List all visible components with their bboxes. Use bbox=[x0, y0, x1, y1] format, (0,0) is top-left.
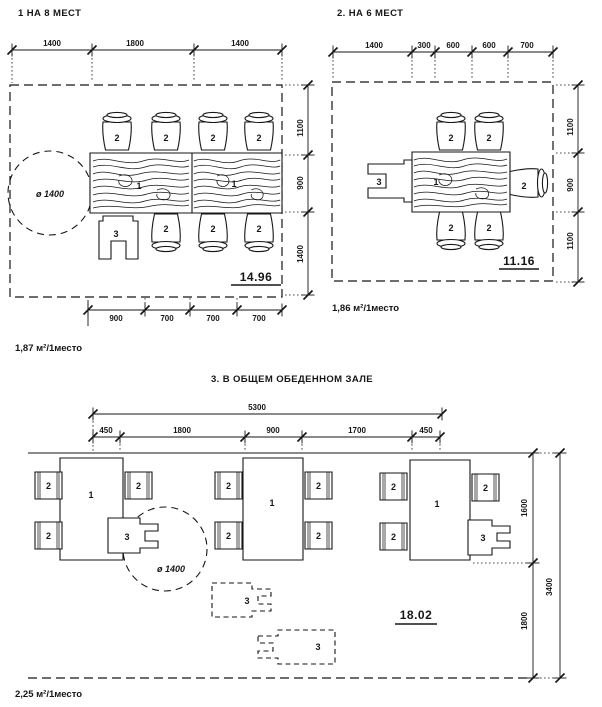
dimension-line-top: 450 1800 900 1700 450 bbox=[89, 417, 445, 452]
chair-label: 2 bbox=[316, 481, 321, 491]
chair-label: 2 bbox=[391, 532, 396, 542]
chair-symbol: 2 bbox=[215, 522, 242, 549]
panel-6-seats: 2. НА 6 МЕСТ 2 2 2 2 2 3 1 1400 bbox=[329, 8, 585, 314]
table-label: 1 bbox=[231, 179, 236, 189]
dim-label: 700 bbox=[160, 314, 174, 323]
serving-cart: 3 bbox=[99, 216, 138, 259]
chair-label: 2 bbox=[46, 481, 51, 491]
chair-symbol: 2 bbox=[380, 523, 407, 550]
panel-title: 2. НА 6 МЕСТ bbox=[337, 8, 403, 19]
chair-label: 2 bbox=[226, 531, 231, 541]
chair-symbol: 2 bbox=[103, 112, 132, 150]
panel-title: 1 НА 8 МЕСТ bbox=[18, 8, 81, 19]
chair-symbol: 2 bbox=[152, 112, 181, 150]
table-label: 1 bbox=[269, 498, 274, 508]
chair-symbol: 2 bbox=[475, 212, 504, 250]
dim-label: 1400 bbox=[365, 41, 383, 50]
chair-symbol: 2 bbox=[35, 522, 62, 549]
chair-symbol: 2 bbox=[245, 214, 274, 252]
serving-cart: 3 bbox=[368, 160, 412, 202]
dim-label: 1800 bbox=[520, 612, 529, 630]
dim-label: 900 bbox=[109, 314, 123, 323]
chair-label: 2 bbox=[316, 531, 321, 541]
table-label: 1 bbox=[88, 490, 93, 500]
area-value: 11.16 bbox=[499, 254, 539, 269]
chair-symbol: 2 bbox=[152, 214, 181, 252]
chair-symbol: 2 bbox=[199, 112, 228, 150]
chair-label: 2 bbox=[210, 224, 215, 234]
area-value: 18.02 bbox=[395, 608, 437, 624]
dim-label: 5300 bbox=[248, 403, 266, 412]
cart-label: 3 bbox=[113, 229, 118, 239]
dim-label: 1600 bbox=[520, 499, 529, 517]
chair-symbol: 2 bbox=[245, 112, 274, 150]
svg-text:11.16: 11.16 bbox=[503, 254, 535, 268]
area-value: 14.96 bbox=[231, 270, 281, 285]
dimension-line-right: 1100 900 1400 bbox=[285, 81, 315, 300]
dim-label: 700 bbox=[252, 314, 266, 323]
table-label: 1 bbox=[433, 177, 438, 187]
svg-text:14.96: 14.96 bbox=[240, 270, 273, 284]
chair-label: 2 bbox=[483, 483, 488, 493]
dining-table bbox=[90, 153, 282, 213]
chair-symbol: 2 bbox=[215, 472, 242, 499]
cart-label: 3 bbox=[376, 177, 381, 187]
chair-label: 2 bbox=[256, 224, 261, 234]
chair-label: 2 bbox=[391, 482, 396, 492]
chair-symbol: 2 bbox=[510, 169, 548, 198]
dim-label: 900 bbox=[266, 426, 280, 435]
dim-label: 700 bbox=[206, 314, 220, 323]
dim-label: 1700 bbox=[348, 426, 366, 435]
dim-label: 600 bbox=[446, 41, 460, 50]
serving-cart-alternate: 3 bbox=[258, 630, 335, 664]
dining-table bbox=[243, 458, 303, 560]
cart-label: 3 bbox=[124, 532, 129, 542]
cart-label: 3 bbox=[244, 596, 249, 606]
dim-label: 3400 bbox=[545, 578, 554, 596]
chair-label: 2 bbox=[448, 223, 453, 233]
chair-symbol: 2 bbox=[125, 472, 152, 499]
chair-symbol: 2 bbox=[305, 472, 332, 499]
area-per-seat: 1,86 м²/1место bbox=[332, 303, 399, 314]
chair-symbol: 2 bbox=[472, 474, 499, 501]
floor-plan-drawing: 1 НА 8 МЕСТ 2 2 2 2 2 2 2 3 ø 1400 1 1 bbox=[0, 0, 602, 707]
panel-8-seats: 1 НА 8 МЕСТ 2 2 2 2 2 2 2 3 ø 1400 1 1 bbox=[8, 8, 315, 354]
dim-label: 1800 bbox=[173, 426, 191, 435]
cart-label: 3 bbox=[315, 642, 320, 652]
chair-symbol: 2 bbox=[305, 522, 332, 549]
dim-label: 1100 bbox=[566, 232, 575, 250]
chair-symbol: 2 bbox=[437, 112, 466, 150]
dimension-line-top: 1400 300 600 600 700 bbox=[329, 41, 558, 80]
chair-label: 2 bbox=[210, 133, 215, 143]
chair-symbol: 2 bbox=[199, 214, 228, 252]
chair-label: 2 bbox=[486, 133, 491, 143]
chair-symbol: 2 bbox=[437, 212, 466, 250]
chair-label: 2 bbox=[486, 223, 491, 233]
chair-label: 2 bbox=[226, 481, 231, 491]
serving-cart: 3 bbox=[468, 520, 510, 555]
panel-common-hall: 3. В ОБЩЕМ ОБЕДЕННОМ ЗАЛЕ 5300 450 1800 … bbox=[15, 374, 567, 700]
table-label: 1 bbox=[136, 181, 141, 191]
dining-table bbox=[410, 460, 470, 560]
svg-text:18.02: 18.02 bbox=[400, 608, 433, 622]
drawing-sheet: 1 НА 8 МЕСТ 2 2 2 2 2 2 2 3 ø 1400 1 1 bbox=[0, 0, 602, 707]
chair-label: 2 bbox=[256, 133, 261, 143]
table-label: 1 bbox=[434, 499, 439, 509]
dim-label: 1800 bbox=[126, 39, 144, 48]
dim-label: 600 bbox=[482, 41, 496, 50]
diameter-label: ø 1400 bbox=[36, 189, 64, 199]
dim-label: 450 bbox=[99, 426, 113, 435]
panel-title: 3. В ОБЩЕМ ОБЕДЕННОМ ЗАЛЕ bbox=[211, 374, 373, 385]
serving-cart-alternate: 3 bbox=[212, 583, 271, 617]
chair-label: 2 bbox=[114, 133, 119, 143]
dim-label: 450 bbox=[419, 426, 433, 435]
serving-cart: 3 bbox=[108, 518, 158, 553]
dimension-line-bottom: 900 700 700 700 bbox=[84, 298, 287, 326]
dining-table bbox=[412, 152, 510, 212]
chair-symbol: 2 bbox=[380, 473, 407, 500]
dim-label: 1400 bbox=[296, 245, 305, 263]
dim-label: 900 bbox=[296, 176, 305, 190]
dim-label: 1100 bbox=[566, 118, 575, 136]
dimension-line-right: 1100 900 1100 bbox=[556, 81, 585, 287]
chair-label: 2 bbox=[448, 133, 453, 143]
dim-label: 700 bbox=[520, 41, 534, 50]
dim-label: 300 bbox=[417, 41, 431, 50]
dim-label: 1400 bbox=[43, 39, 61, 48]
area-per-seat: 2,25 м²/1место bbox=[15, 689, 82, 700]
area-per-seat: 1,87 м²/1место bbox=[15, 343, 82, 354]
dim-label: 900 bbox=[566, 178, 575, 192]
dim-label: 1400 bbox=[231, 39, 249, 48]
chair-label: 2 bbox=[163, 224, 168, 234]
chair-label: 2 bbox=[163, 133, 168, 143]
chair-symbol: 2 bbox=[35, 472, 62, 499]
dimension-line-overall: 5300 bbox=[89, 403, 447, 421]
chair-label: 2 bbox=[136, 481, 141, 491]
dim-label: 1100 bbox=[296, 119, 305, 137]
chair-label: 2 bbox=[521, 181, 526, 191]
chair-symbol: 2 bbox=[475, 112, 504, 150]
diameter-label: ø 1400 bbox=[157, 564, 185, 574]
cart-label: 3 bbox=[480, 533, 485, 543]
dimension-line-top: 1400 1800 1400 bbox=[8, 39, 287, 83]
chair-label: 2 bbox=[46, 531, 51, 541]
dimension-line-overall-right: 3400 bbox=[536, 449, 567, 683]
